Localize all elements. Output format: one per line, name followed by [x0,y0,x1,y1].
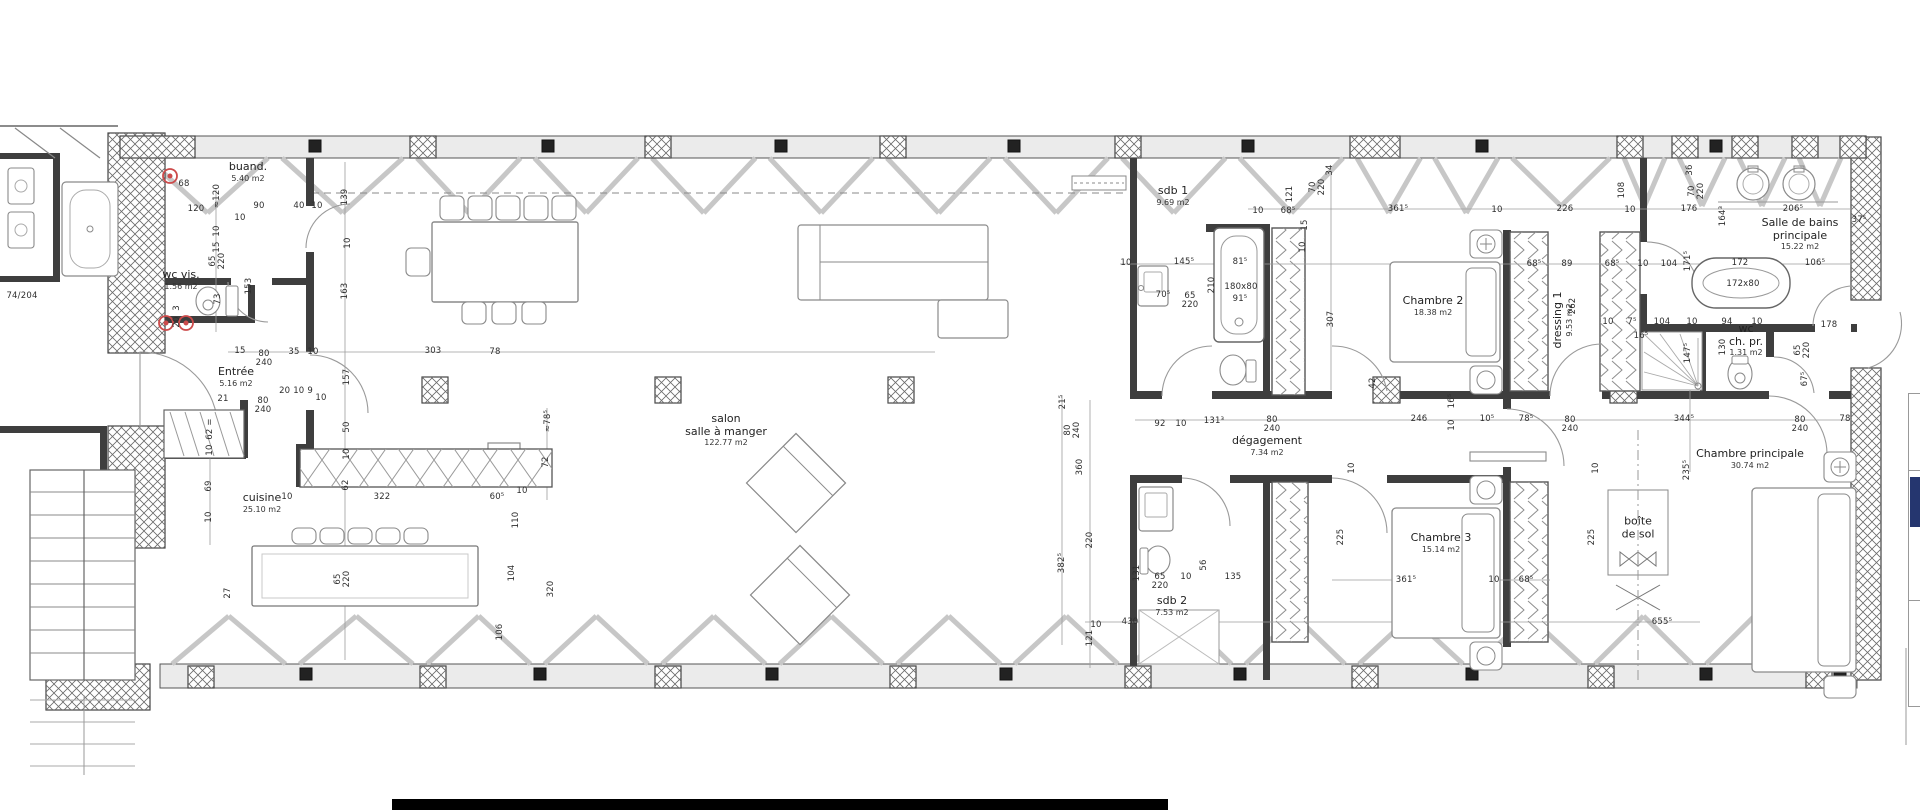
legend-note-box [1908,393,1920,472]
bottom-bar [392,799,1168,810]
floor-plan: buand.5.40 m2wc vis.1.56 m2Entrée5.16 m2… [0,0,1920,810]
legend-color-swatch [1910,477,1920,527]
legend-empty-box [1908,600,1920,707]
floor-plan-drawing [0,0,1920,810]
